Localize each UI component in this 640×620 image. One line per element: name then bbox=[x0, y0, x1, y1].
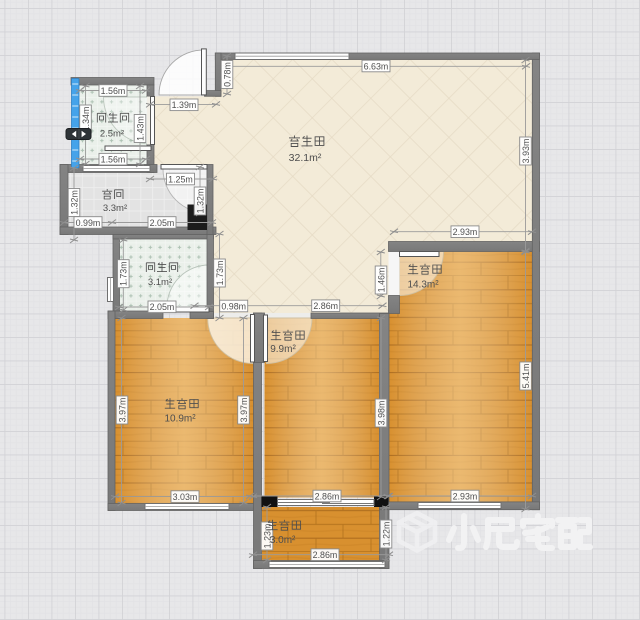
svg-text:1.56m: 1.56m bbox=[101, 86, 126, 96]
svg-text:1.39m: 1.39m bbox=[172, 100, 197, 110]
svg-text:9.9m²: 9.9m² bbox=[270, 344, 296, 355]
svg-text:2.5m²: 2.5m² bbox=[100, 128, 124, 139]
svg-text:10.9m²: 10.9m² bbox=[164, 414, 196, 425]
svg-text:32.1m²: 32.1m² bbox=[289, 152, 322, 164]
svg-text:1.73m: 1.73m bbox=[215, 261, 225, 286]
svg-text:2.05m: 2.05m bbox=[150, 218, 175, 228]
svg-text:2.86m: 2.86m bbox=[313, 550, 338, 560]
svg-text:1.25m: 1.25m bbox=[168, 174, 193, 184]
svg-text:1.73m: 1.73m bbox=[119, 261, 129, 286]
svg-text:3.3m²: 3.3m² bbox=[103, 203, 127, 214]
svg-text:3.97m: 3.97m bbox=[117, 398, 127, 423]
svg-text:3.98m: 3.98m bbox=[376, 401, 386, 426]
svg-text:1.56m: 1.56m bbox=[101, 155, 126, 165]
svg-text:0.98m: 0.98m bbox=[221, 301, 246, 311]
svg-text:1.32m: 1.32m bbox=[69, 190, 79, 215]
svg-text:0.78m: 0.78m bbox=[222, 62, 232, 87]
svg-text:2.93m: 2.93m bbox=[453, 227, 478, 237]
svg-text:1.34m: 1.34m bbox=[81, 107, 91, 132]
svg-text:2.05m: 2.05m bbox=[150, 302, 175, 312]
svg-text:1.46m: 1.46m bbox=[376, 268, 386, 293]
svg-text:3.93m: 3.93m bbox=[521, 139, 531, 164]
svg-text:2.86m: 2.86m bbox=[313, 301, 338, 311]
svg-text:1.43m: 1.43m bbox=[135, 116, 145, 141]
svg-text:1.32m: 1.32m bbox=[195, 189, 205, 214]
svg-text:2.93m: 2.93m bbox=[453, 491, 478, 501]
svg-text:14.3m²: 14.3m² bbox=[407, 279, 439, 290]
svg-text:3.03m: 3.03m bbox=[173, 492, 198, 502]
svg-text:2.86m: 2.86m bbox=[315, 491, 340, 501]
svg-text:6.63m: 6.63m bbox=[364, 61, 389, 71]
svg-text:0.99m: 0.99m bbox=[76, 218, 101, 228]
svg-text:1.22m: 1.22m bbox=[381, 522, 391, 547]
svg-text:3.1m²: 3.1m² bbox=[148, 277, 172, 288]
svg-text:5.41m: 5.41m bbox=[521, 364, 531, 389]
svg-text:3.97m: 3.97m bbox=[239, 398, 249, 423]
svg-text:3.0m²: 3.0m² bbox=[270, 535, 296, 546]
